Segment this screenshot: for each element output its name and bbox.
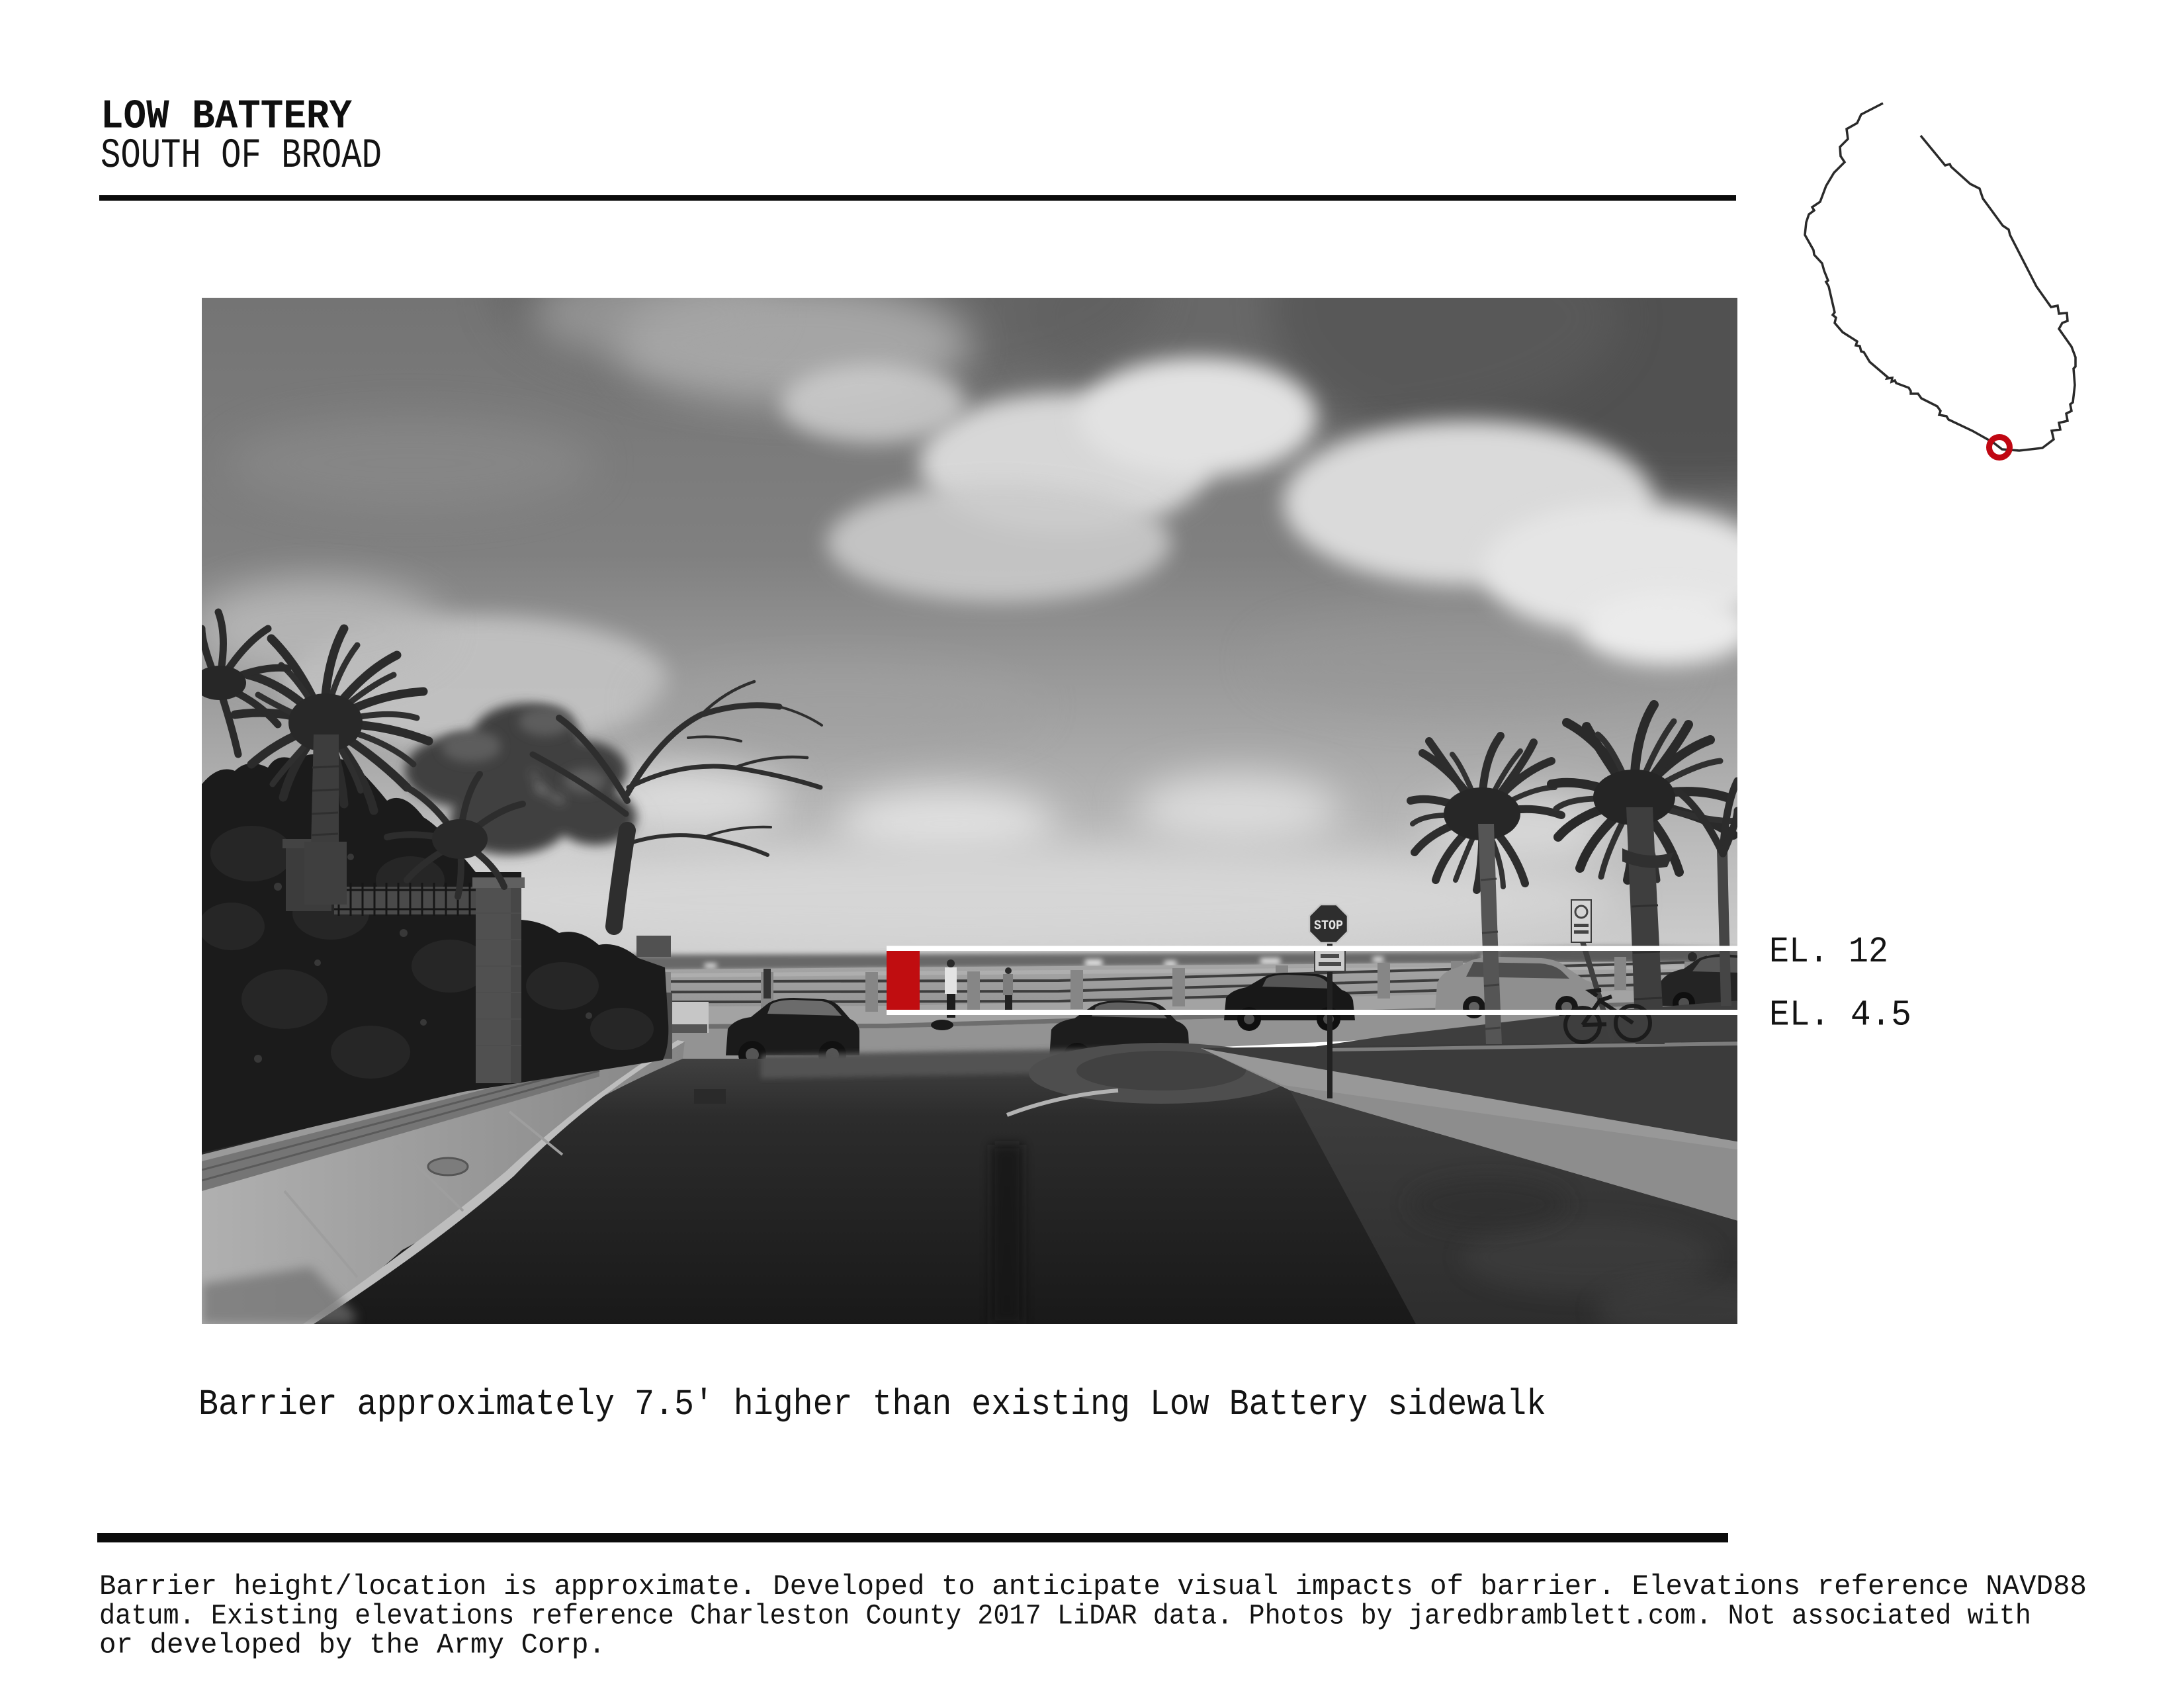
svg-text:EL. 4.5: EL. 4.5: [1769, 995, 1911, 1036]
svg-text:or developed by the Army Corp.: or developed by the Army Corp.: [99, 1629, 605, 1662]
svg-text:Barrier approximately 7.5' hig: Barrier approximately 7.5' higher than e…: [198, 1384, 1546, 1425]
svg-text:STOP: STOP: [1314, 918, 1343, 934]
svg-text:EL. 12: EL. 12: [1769, 931, 1888, 973]
svg-text:datum. Existing elevations ref: datum. Existing elevations reference Cha…: [99, 1600, 2031, 1632]
svg-text:SOUTH OF BROAD: SOUTH OF BROAD: [101, 132, 382, 179]
svg-text:Barrier height/location is app: Barrier height/location is approximate. …: [99, 1570, 2087, 1603]
